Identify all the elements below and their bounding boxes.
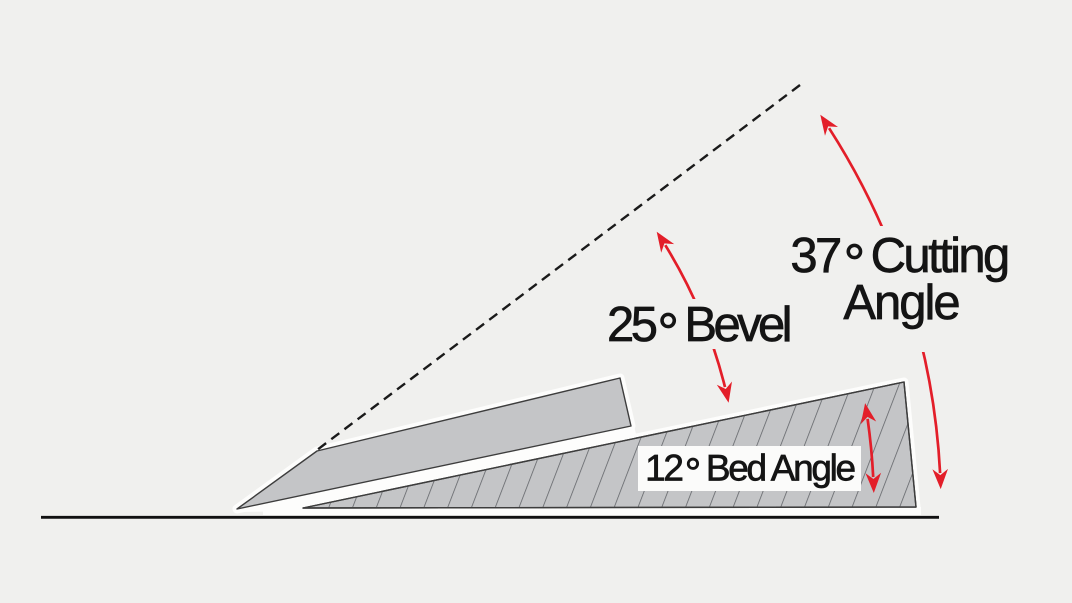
svg-text:Angle: Angle	[843, 276, 959, 330]
svg-text:12°Bed Angle: 12°Bed Angle	[645, 448, 854, 496]
